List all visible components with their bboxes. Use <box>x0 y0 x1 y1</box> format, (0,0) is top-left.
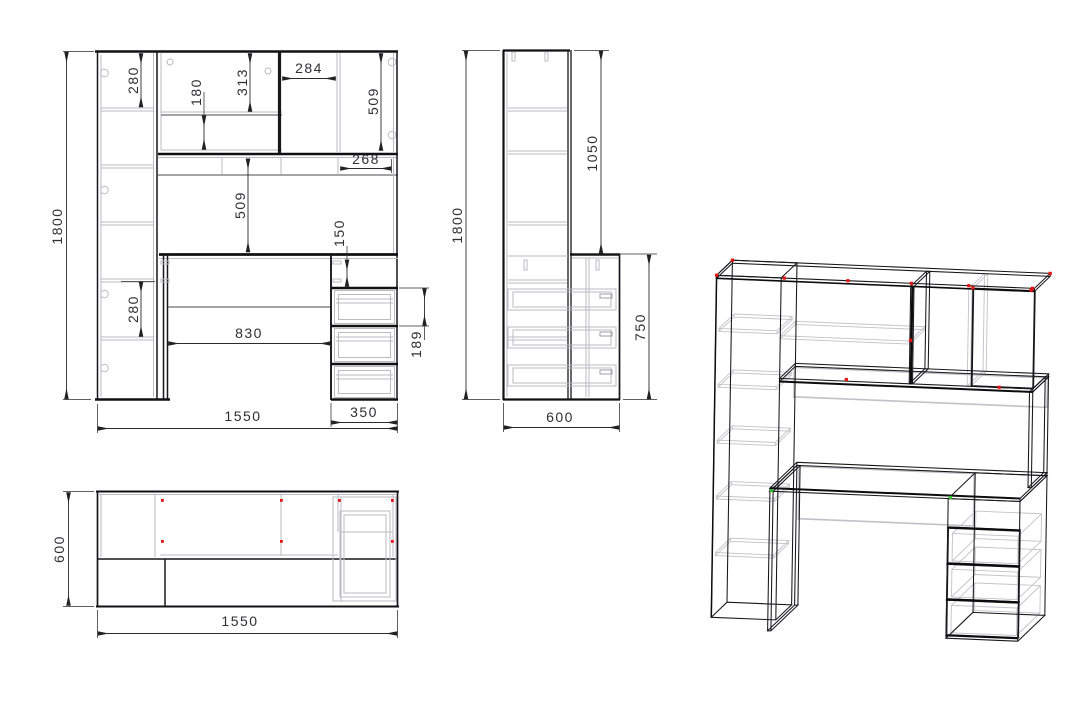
dim-front-drawer-pitch: 189 <box>408 330 424 358</box>
isometric-view <box>711 259 1051 642</box>
dim-front-drawer-unit-width: 350 <box>350 404 378 420</box>
assembly-marker-red <box>1030 289 1033 292</box>
drawer-fronts <box>335 291 395 398</box>
assembly-marker-green <box>770 489 773 492</box>
side-shelf-lines <box>508 52 599 340</box>
dim-front-middle-niche-height: 509 <box>232 191 248 219</box>
assembly-marker-red <box>731 259 734 262</box>
assembly-marker-red <box>783 277 786 280</box>
dim-front-right-niche-height: 509 <box>365 87 381 115</box>
dim-front-desk-opening: 830 <box>235 325 263 341</box>
dim-side-hutch-height: 1050 <box>584 134 600 171</box>
top-internal-lines <box>99 494 396 601</box>
dim-front-right-niche-width: 268 <box>352 151 380 167</box>
dim-front-total-height: 1800 <box>49 207 65 244</box>
side-view: 1800 1050 750 600 <box>449 50 657 432</box>
assembly-marker-green <box>949 496 952 499</box>
top-assembly-markers <box>161 499 394 543</box>
dim-front-niche-width: 284 <box>295 60 323 76</box>
dim-side-desk-height: 750 <box>632 313 648 341</box>
dim-front-upper-box: 313 <box>234 68 250 96</box>
assembly-marker-red <box>910 282 913 285</box>
dim-front-upper-gap: 180 <box>188 78 204 106</box>
front-view: 1800 280 280 313 180 284 509 268 509 150 <box>49 51 429 433</box>
dim-front-keyboard-gap: 150 <box>331 219 347 247</box>
assembly-marker-red <box>998 386 1001 389</box>
assembly-marker-red <box>967 284 970 287</box>
dim-side-total-height: 1800 <box>449 206 465 243</box>
technical-drawing-svg: 1800 280 280 313 180 284 509 268 509 150 <box>0 0 1074 710</box>
assembly-marker-red <box>715 274 718 277</box>
dim-side-depth: 600 <box>546 409 574 425</box>
assembly-marker-red <box>971 286 974 289</box>
dim-front-lower-shelf: 280 <box>125 295 141 323</box>
assembly-marker-red <box>1049 272 1052 275</box>
dim-top-depth: 600 <box>51 535 67 563</box>
top-dimensions: 600 1550 <box>51 492 398 639</box>
dim-top-total-width: 1550 <box>221 613 258 629</box>
assembly-marker-red <box>909 339 912 342</box>
assembly-marker-red <box>845 378 848 381</box>
top-view: 600 1550 <box>51 491 399 638</box>
drawing-canvas: 1800 280 280 313 180 284 509 268 509 150 <box>0 0 1074 710</box>
front-dimensions: 1800 280 280 313 180 284 509 268 509 150 <box>49 52 429 434</box>
dim-front-total-width: 1550 <box>224 408 261 424</box>
dim-front-top-shelf: 280 <box>125 66 141 94</box>
assembly-marker-red <box>846 279 849 282</box>
